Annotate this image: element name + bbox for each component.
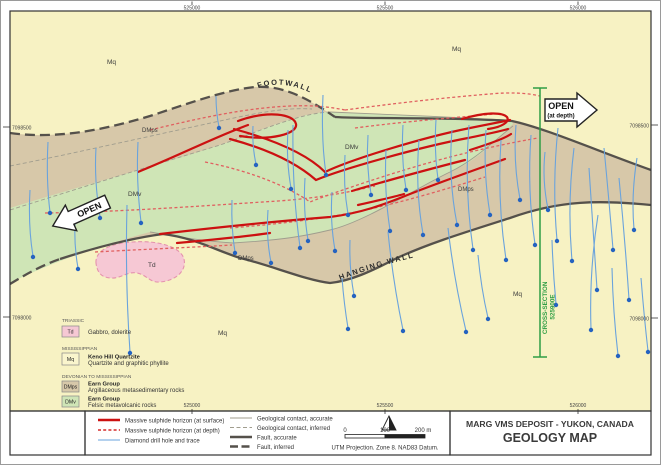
swatch-dmps-code: DMps (64, 385, 78, 391)
map-label-dmv-2: DMv (345, 144, 359, 151)
cross-section-easting: 525900E (550, 294, 557, 319)
swatch-td-code: Td (67, 330, 73, 336)
geology-map-page: CROSS-SECTION 525900E Mq Mq Mq Mq DMps D… (0, 0, 661, 465)
fault-accurate-label: Fault, accurate (257, 436, 297, 442)
era-dev-miss: DEVONIAN TO MISSISSIPPIAN (62, 374, 132, 380)
coord-bottom-2: 525500 (377, 403, 394, 409)
map-label-dmps-3: DMps (238, 256, 254, 262)
open-right-sublabel: (at depth) (547, 114, 574, 120)
dmv-name: Earn Group (88, 397, 120, 403)
geology-map-canvas: CROSS-SECTION 525900E Mq Mq Mq Mq DMps D… (0, 0, 661, 465)
map-label-td: Td (148, 262, 156, 269)
open-right-label: OPEN (548, 101, 574, 111)
scale-bar-left (345, 435, 385, 439)
scale-100: 100 (380, 428, 391, 434)
datum-note: UTM Projection. Zone 8. NAD83 Datum. (331, 446, 438, 452)
td-desc: Gabbro, dolerite (88, 330, 132, 336)
map-label-mq-3: Mq (218, 330, 227, 337)
dmps-name: Earn Group (88, 382, 120, 388)
map-title-line1: MARG VMS DEPOSIT - YUKON, CANADA (466, 419, 634, 429)
coord-left-1: 7098500 (12, 126, 32, 132)
coord-bottom-3: 526000 (570, 403, 587, 409)
map-area: CROSS-SECTION 525900E Mq Mq Mq Mq DMps D… (10, 11, 651, 411)
fault-inferred-label: Fault, inferred (257, 445, 294, 451)
era-mississippian: MISSISSIPPIAN (62, 346, 98, 352)
map-title-line2: GEOLOGY MAP (503, 431, 597, 445)
cross-section-label: CROSS-SECTION (542, 281, 549, 334)
swatch-mq-code: Mq (67, 357, 74, 363)
map-label-mq-1: Mq (107, 59, 116, 66)
swatch-dmv-code: DMv (65, 400, 76, 406)
drill-hole-label: Diamond drill hole and trace (125, 439, 200, 445)
dmv-desc: Felsic metavolcanic rocks (88, 403, 156, 409)
coord-top-3: 526000 (570, 6, 587, 12)
coord-bottom-1: 525000 (184, 403, 201, 409)
scale-200: 200 m (415, 428, 432, 434)
contact-inferred-label: Geological contact, inferred (257, 426, 330, 432)
coord-top-1: 525000 (184, 6, 201, 12)
map-label-dmps-2: DMps (458, 187, 474, 193)
scale-bar-right (385, 435, 425, 439)
map-label-dmv-1: DMv (128, 191, 142, 198)
contact-accurate-label: Geological contact, accurate (257, 417, 333, 423)
coord-top-2: 525500 (377, 6, 394, 12)
map-label-mq-4: Mq (513, 291, 522, 298)
coord-right-1: 7098500 (630, 124, 650, 130)
map-label-dmps-1: DMps (142, 128, 158, 134)
map-label-mq-2: Mq (452, 46, 461, 53)
era-triassic: TRIASSIC (62, 318, 85, 324)
coord-right-2: 7098000 (630, 317, 650, 323)
dmps-desc: Argillaceous metasedimentary rocks (88, 388, 184, 394)
sulphide-surface-label: Massive sulphide horizon (at surface) (125, 419, 224, 425)
mq-name: Keno Hill Quartzite (88, 355, 141, 361)
mq-desc: Quartzite and graphitic phyllite (88, 361, 169, 367)
sulphide-depth-label: Massive sulphide horizon (at depth) (125, 429, 220, 435)
coord-left-2: 7098000 (12, 316, 32, 322)
